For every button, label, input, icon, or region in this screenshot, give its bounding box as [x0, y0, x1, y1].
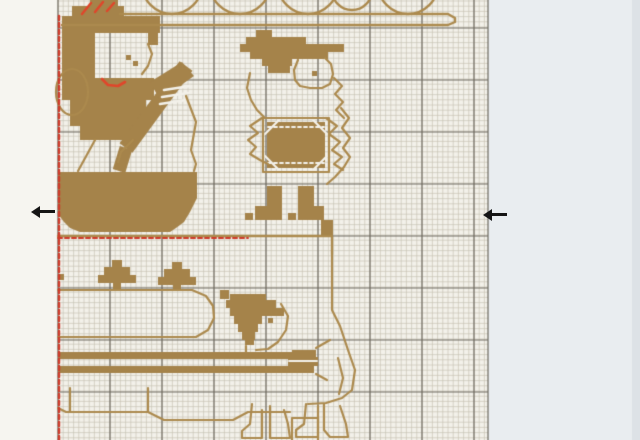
right-page-margin [488, 0, 640, 440]
center-row-arrow-right-icon [492, 213, 507, 216]
scanned-pattern-page [0, 0, 640, 440]
center-row-arrow-left-icon [40, 210, 55, 213]
left-page-margin [0, 0, 58, 440]
stitch-grid-area [58, 0, 488, 440]
